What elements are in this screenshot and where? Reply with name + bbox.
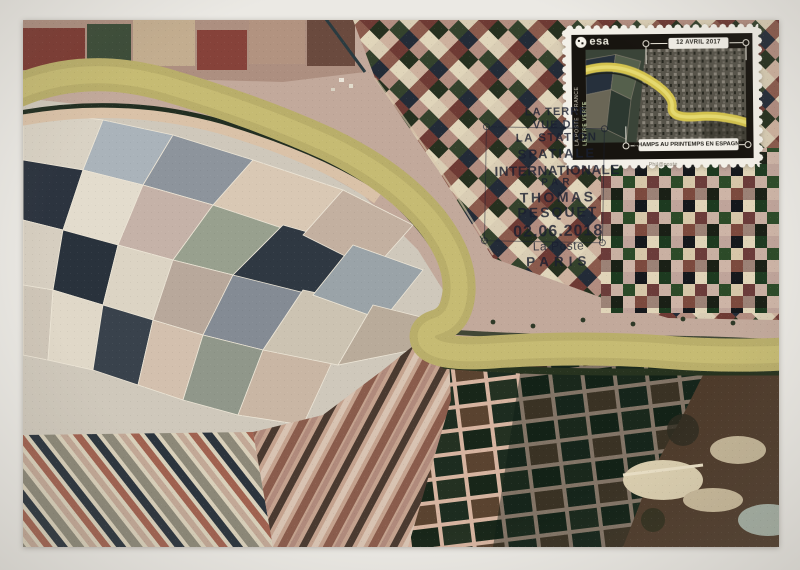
- pin-line: [729, 42, 742, 43]
- stamp-photo-scene: [586, 48, 747, 143]
- esa-logo-text: esa: [589, 37, 609, 48]
- stamp-side-text-lettre-verte: LETTRE VERTE: [581, 47, 589, 146]
- stamp-side-texts: LA POSTE - FRANCE LETTRE VERTE: [573, 47, 588, 146]
- pin-icon: [742, 39, 749, 46]
- pin-line: [625, 126, 626, 142]
- pin-icon: [642, 40, 649, 47]
- postage-stamp: esa 12 AVRIL 2017 CHAMPS AU PRINTEMPS EN…: [561, 23, 764, 170]
- pin-line: [650, 43, 667, 44]
- stamp-perforation: [561, 29, 570, 166]
- stamp-date-label: 12 AVRIL 2017: [668, 37, 728, 49]
- stamp-side-text-laposte: LA POSTE - FRANCE: [573, 47, 581, 146]
- stamp-perforation: [754, 27, 763, 164]
- pin-line: [645, 47, 646, 64]
- stamp-caption: CHAMPS AU PRINTEMPS EN ESPAGNE: [638, 138, 738, 151]
- pin-icon: [622, 142, 629, 149]
- pin-icon: [744, 141, 751, 148]
- stamp-black-frame: esa 12 AVRIL 2017 CHAMPS AU PRINTEMPS EN…: [571, 33, 753, 160]
- pin-line: [745, 46, 746, 60]
- stamp-photo: [586, 48, 747, 143]
